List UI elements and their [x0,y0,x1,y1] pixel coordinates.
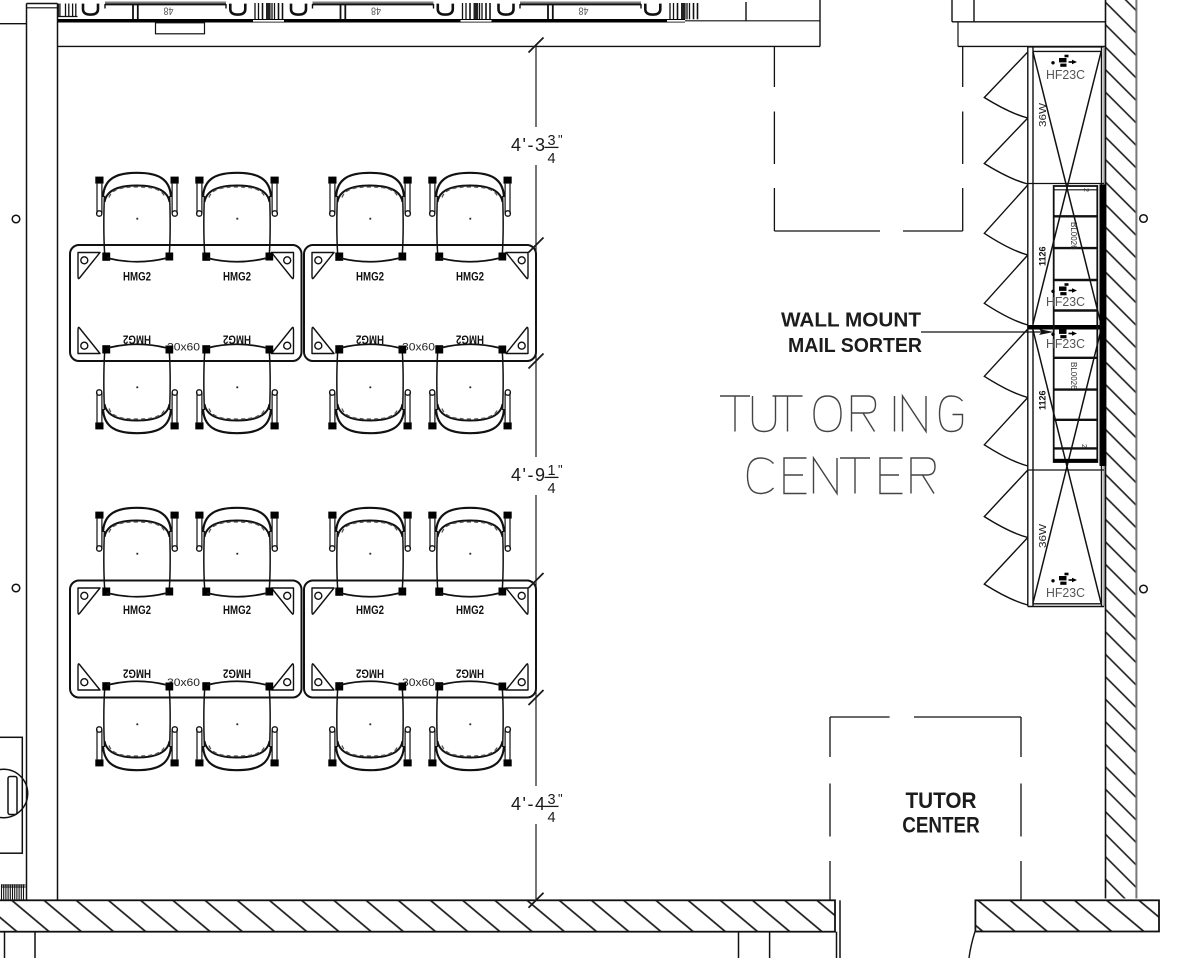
svg-text:HMG2: HMG2 [223,272,251,284]
svg-text:48: 48 [371,5,381,17]
svg-text:": " [558,132,563,147]
svg-text:4'-9: 4'-9 [511,465,546,485]
svg-text:4: 4 [547,810,555,826]
svg-text:TUTOR: TUTOR [906,788,977,813]
svg-text:1126: 1126 [1038,390,1048,410]
svg-text:HF23C: HF23C [1046,586,1085,600]
svg-text:HMG2: HMG2 [456,272,484,284]
svg-text:CENTER: CENTER [902,813,980,838]
svg-text:BL0026: BL0026 [1069,222,1078,250]
svg-text:4: 4 [547,481,555,497]
svg-text:HMG2: HMG2 [456,605,484,617]
svg-text:3: 3 [547,792,555,808]
svg-text:HF23C: HF23C [1046,337,1085,351]
svg-text:36W: 36W [1037,103,1049,127]
svg-text:2: 2 [1080,444,1087,448]
svg-text:HMG2: HMG2 [123,605,151,617]
svg-text:HMG2: HMG2 [356,605,384,617]
svg-text:HMG2: HMG2 [356,272,384,284]
svg-text:48: 48 [164,5,174,17]
svg-text:HF23C: HF23C [1046,68,1085,82]
svg-text:30x60: 30x60 [402,342,435,354]
svg-text:4: 4 [547,151,555,167]
svg-text:HMG2: HMG2 [356,667,384,679]
svg-text:HMG2: HMG2 [456,667,484,679]
svg-text:HMG2: HMG2 [123,667,151,679]
svg-text:HMG2: HMG2 [223,333,251,345]
svg-text:1126: 1126 [1038,246,1048,266]
svg-text:4'-3: 4'-3 [511,135,546,155]
svg-text:36W: 36W [1037,524,1049,548]
svg-text:HMG2: HMG2 [223,667,251,679]
svg-text:HF23C: HF23C [1046,295,1085,309]
svg-text:HMG2: HMG2 [456,333,484,345]
svg-text:HMG2: HMG2 [223,605,251,617]
svg-text:HMG2: HMG2 [123,272,151,284]
svg-text:MAIL SORTER: MAIL SORTER [788,335,923,357]
svg-text:3: 3 [547,133,555,149]
svg-text:HMG2: HMG2 [356,333,384,345]
svg-text:4'-4: 4'-4 [511,794,546,814]
svg-text:2: 2 [1082,188,1089,192]
svg-text:48: 48 [579,5,589,17]
svg-text:1: 1 [547,463,555,479]
svg-text:HMG2: HMG2 [123,333,151,345]
svg-text:30x60: 30x60 [402,677,435,689]
svg-text:": " [558,462,563,477]
svg-text:WALL MOUNT: WALL MOUNT [781,310,921,332]
svg-text:": " [558,791,563,806]
svg-text:BL0026: BL0026 [1069,362,1078,390]
